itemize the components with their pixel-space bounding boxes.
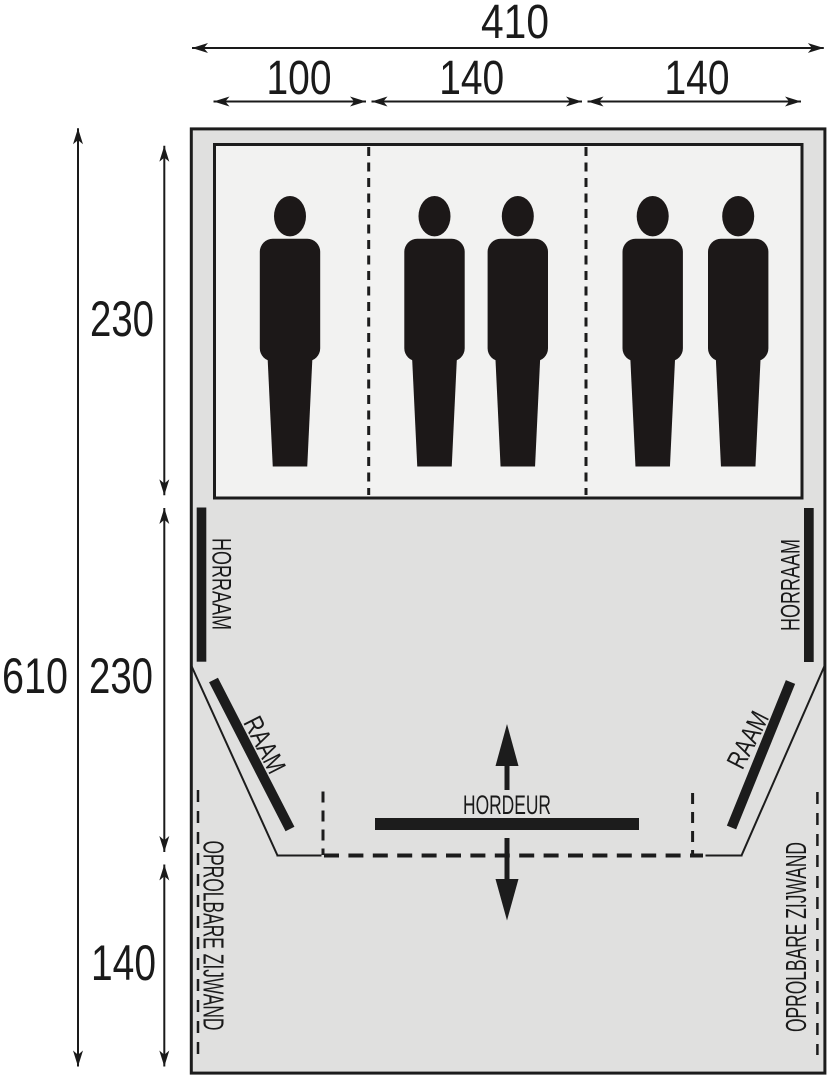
svg-text:140: 140 bbox=[665, 52, 730, 105]
svg-text:HORDEUR: HORDEUR bbox=[463, 790, 551, 820]
svg-text:230: 230 bbox=[89, 648, 153, 704]
svg-text:100: 100 bbox=[267, 52, 332, 105]
svg-text:410: 410 bbox=[481, 0, 549, 49]
svg-text:140: 140 bbox=[439, 52, 504, 105]
svg-text:HORRAAM: HORRAAM bbox=[207, 538, 237, 630]
svg-text:230: 230 bbox=[90, 291, 154, 347]
svg-text:610: 610 bbox=[2, 648, 68, 704]
svg-text:HORRAAM: HORRAAM bbox=[776, 539, 806, 631]
svg-text:OPROLBARE ZIJWAND: OPROLBARE ZIJWAND bbox=[781, 842, 813, 1032]
svg-text:OPROLBARE ZIJWAND: OPROLBARE ZIJWAND bbox=[197, 841, 229, 1031]
svg-text:140: 140 bbox=[91, 935, 156, 991]
